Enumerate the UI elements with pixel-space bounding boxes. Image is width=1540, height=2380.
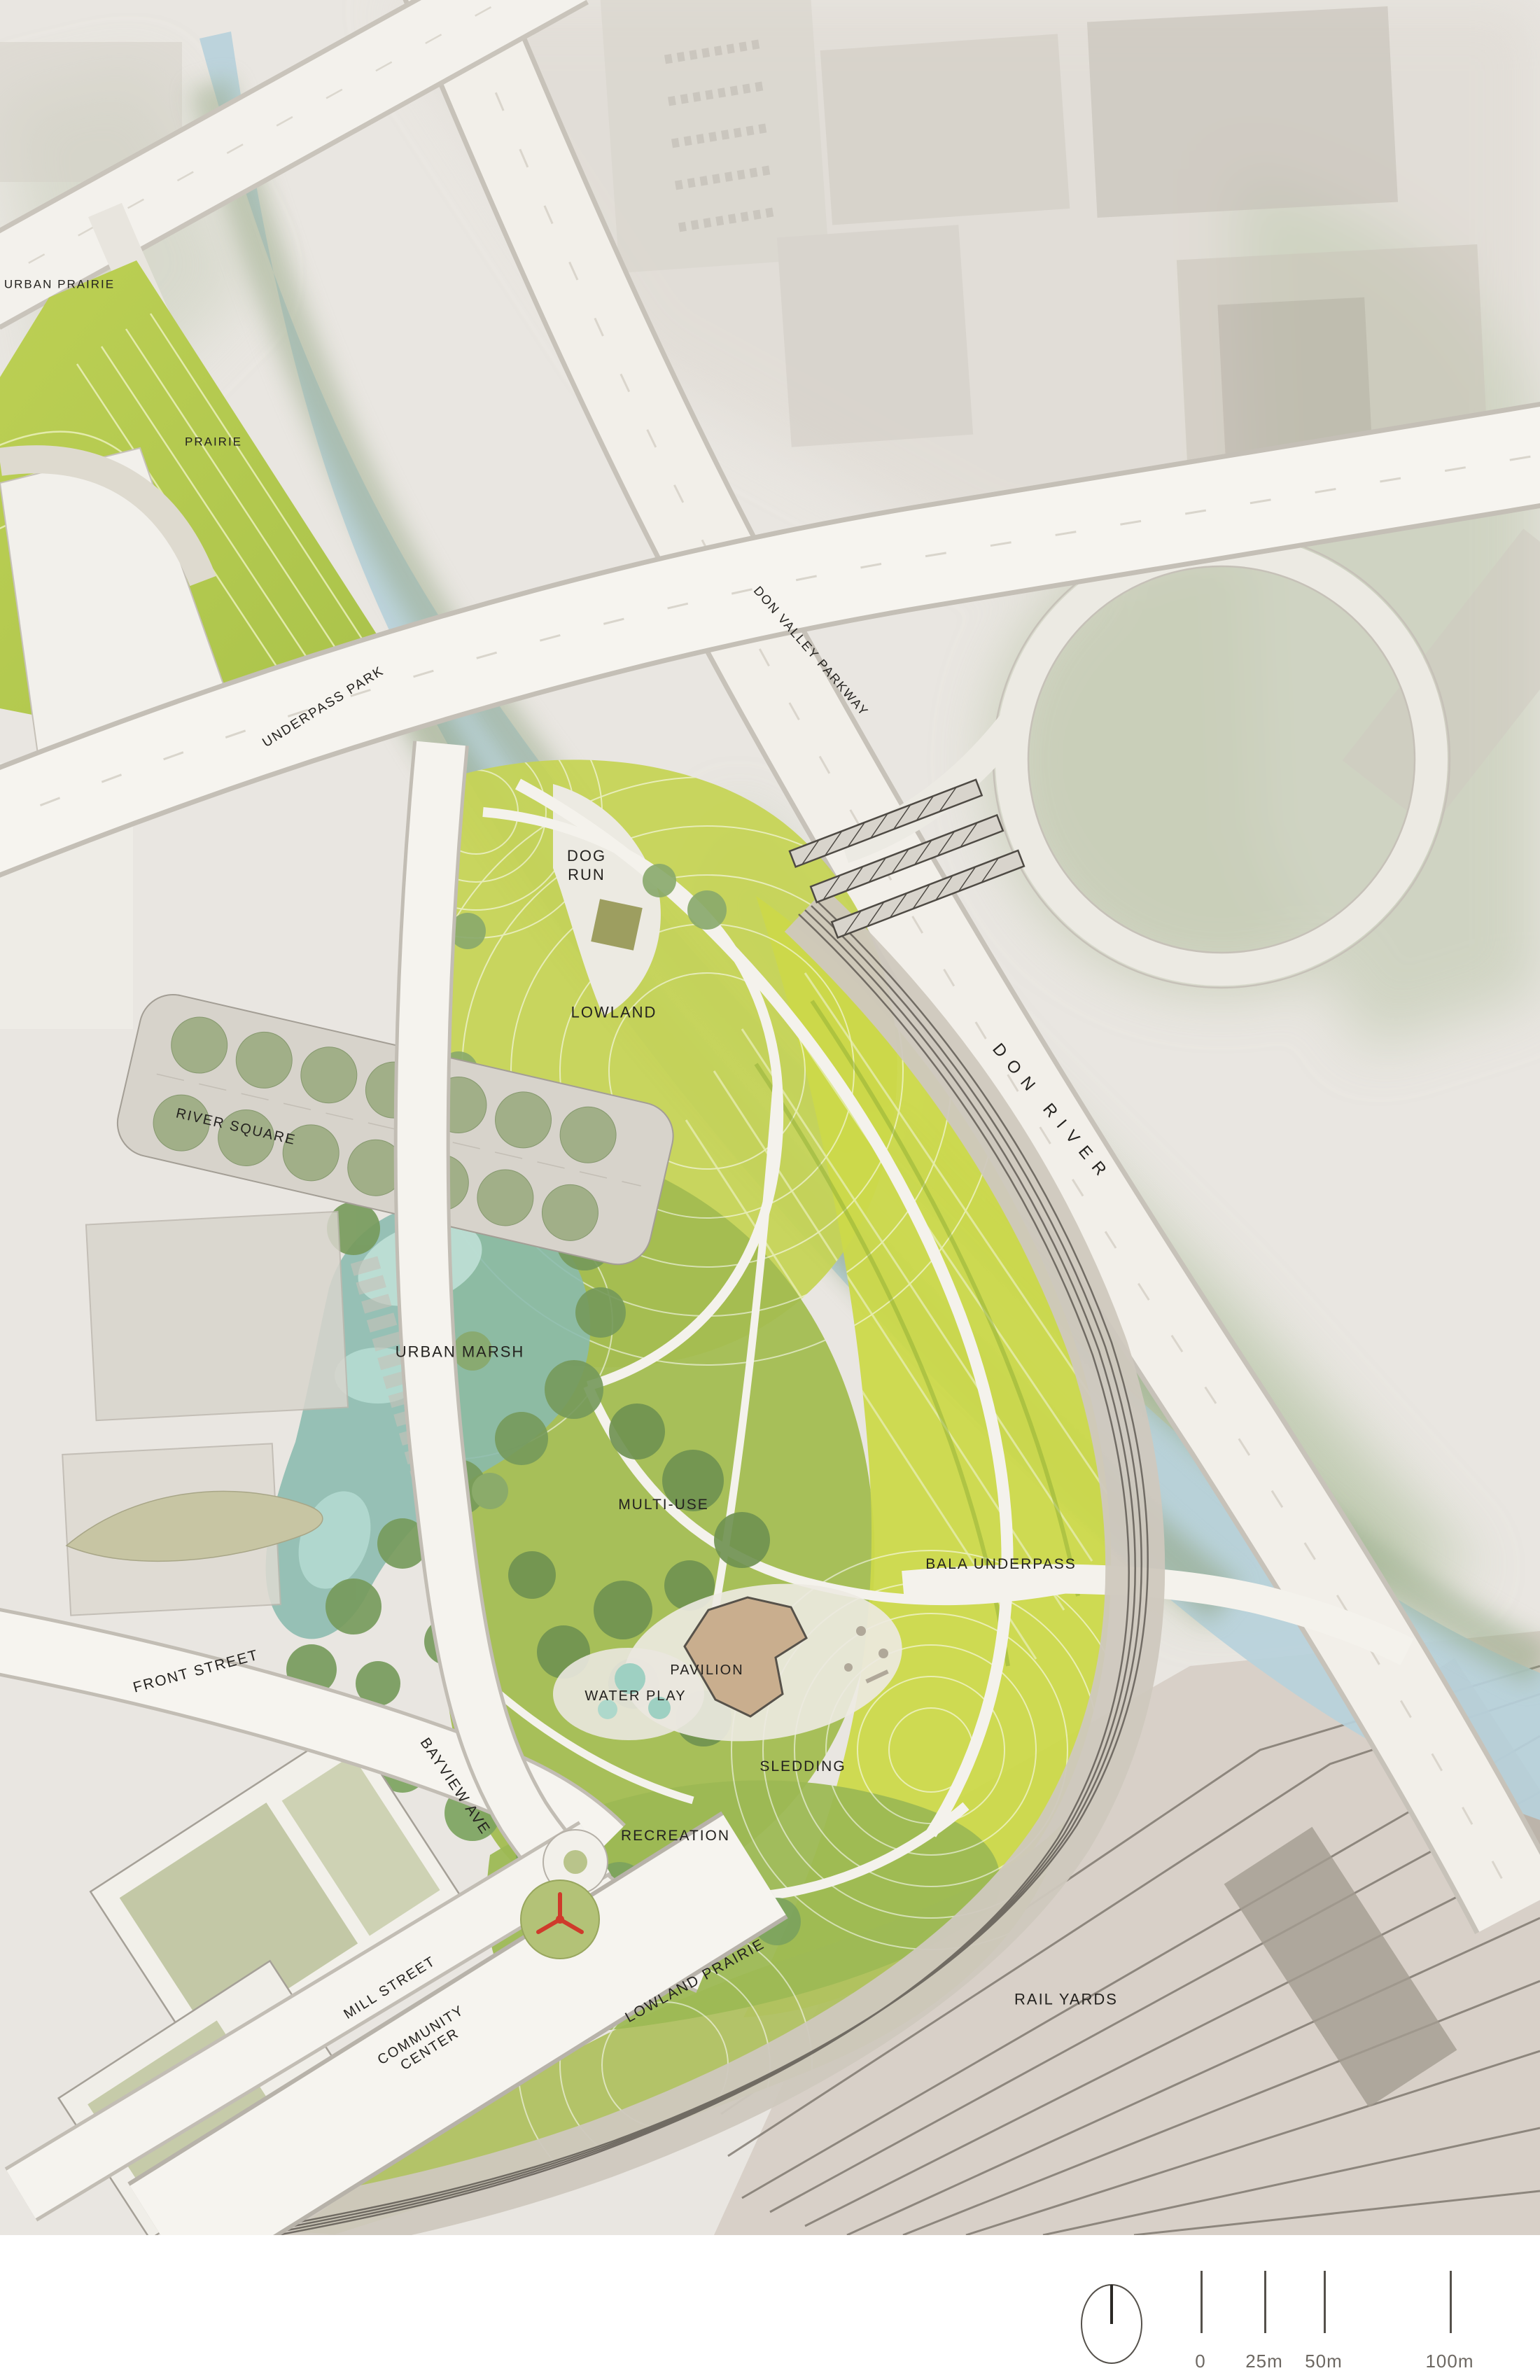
site-plan-page: URBAN PRAIRIEPRAIRIEUNDERPASS PARKDON VA… — [0, 0, 1540, 2380]
dog-run-surface — [591, 899, 643, 951]
bottom-margin — [0, 2235, 1540, 2380]
wind-turbine-island — [521, 1880, 599, 1959]
site-plan-map — [0, 0, 1540, 2380]
water-play-pools — [553, 1648, 704, 1740]
